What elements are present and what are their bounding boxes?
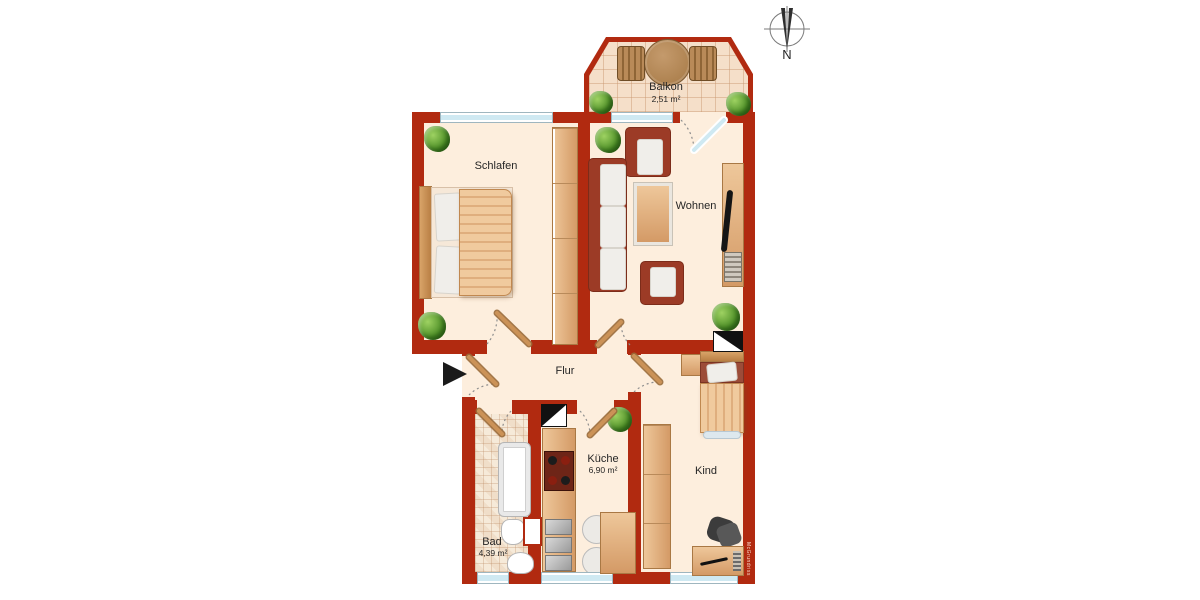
room-label-balkon: Balkon (649, 81, 683, 93)
room-label-kind: Kind (695, 465, 717, 477)
room-area-kueche: 6,90 m² (589, 465, 618, 475)
watermark-text: McGrundriss (745, 542, 751, 582)
floor-plan: Balkon 2,51 m² (0, 0, 1200, 600)
room-label-kueche: Küche (587, 453, 618, 465)
room-area-bad: 4,39 m² (479, 548, 508, 558)
room-label-bad: Bad (482, 536, 502, 548)
room-label-flur: Flur (556, 365, 575, 377)
room-label-wohnen: Wohnen (676, 200, 717, 212)
room-area-balkon: 2,51 m² (652, 94, 681, 104)
room-label-schlafen: Schlafen (475, 160, 518, 172)
compass-north-label: N (782, 47, 791, 62)
door-swing-overlay (0, 0, 1200, 600)
